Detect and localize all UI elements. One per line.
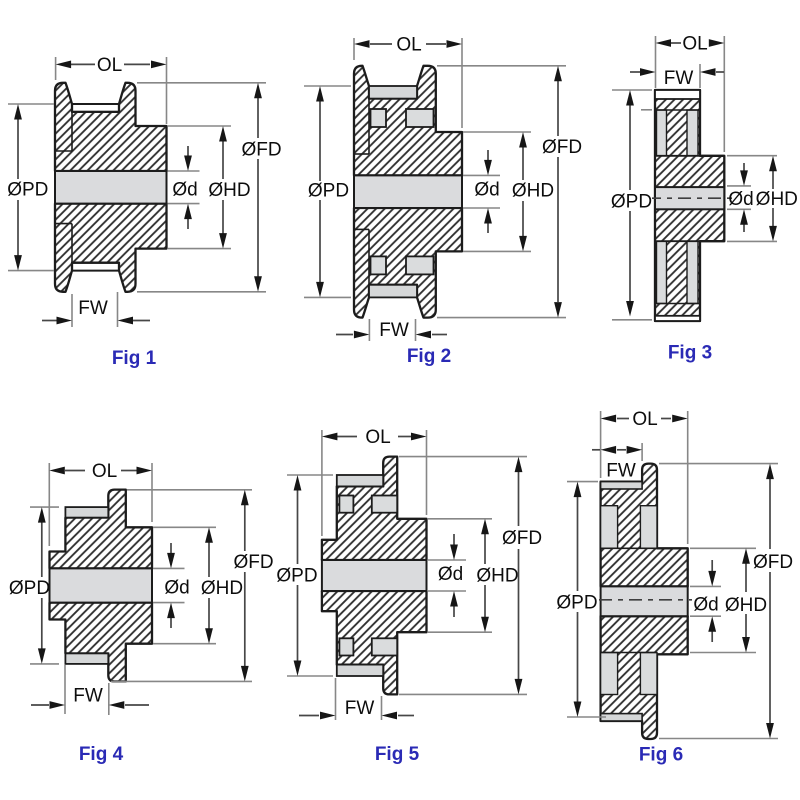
svg-text:Fig 2: Fig 2 — [407, 346, 451, 367]
svg-text:ØHD: ØHD — [476, 566, 518, 587]
svg-text:OL: OL — [92, 461, 117, 482]
svg-text:Ød: Ød — [164, 578, 189, 599]
svg-text:Fig 6: Fig 6 — [639, 745, 683, 766]
svg-text:ØPD: ØPD — [611, 191, 652, 212]
svg-text:Fig 5: Fig 5 — [375, 744, 420, 765]
svg-text:FW: FW — [345, 698, 375, 719]
svg-text:ØPD: ØPD — [308, 181, 349, 202]
svg-text:FW: FW — [78, 298, 108, 319]
svg-text:FW: FW — [379, 320, 409, 341]
svg-text:ØHD: ØHD — [756, 189, 798, 210]
svg-text:Ød: Ød — [438, 564, 463, 585]
svg-text:Fig 4: Fig 4 — [79, 744, 124, 765]
svg-text:ØHD: ØHD — [725, 595, 767, 616]
svg-text:ØFD: ØFD — [241, 139, 281, 160]
svg-text:ØPD: ØPD — [9, 578, 50, 599]
svg-text:OL: OL — [632, 409, 657, 430]
svg-text:FW: FW — [73, 686, 103, 707]
svg-text:ØFD: ØFD — [753, 552, 793, 573]
svg-text:OL: OL — [396, 35, 421, 56]
svg-text:ØHD: ØHD — [208, 180, 250, 201]
svg-text:Ød: Ød — [728, 189, 753, 210]
svg-text:OL: OL — [97, 55, 122, 76]
svg-text:OL: OL — [682, 33, 707, 54]
svg-text:FW: FW — [664, 68, 694, 89]
svg-text:ØPD: ØPD — [276, 566, 317, 587]
svg-text:ØHD: ØHD — [201, 578, 243, 599]
svg-text:ØPD: ØPD — [7, 180, 48, 201]
svg-text:OL: OL — [365, 427, 390, 448]
svg-text:Fig 3: Fig 3 — [668, 343, 712, 364]
svg-text:ØHD: ØHD — [512, 181, 554, 202]
svg-text:ØFD: ØFD — [502, 528, 542, 549]
svg-text:ØFD: ØFD — [542, 137, 582, 158]
svg-text:Fig 1: Fig 1 — [112, 348, 157, 369]
svg-text:Ød: Ød — [172, 180, 197, 201]
svg-text:FW: FW — [606, 461, 636, 482]
svg-text:Ød: Ød — [474, 180, 499, 201]
svg-text:Ød: Ød — [693, 595, 718, 616]
svg-text:ØPD: ØPD — [556, 593, 597, 614]
svg-text:ØFD: ØFD — [233, 552, 273, 573]
